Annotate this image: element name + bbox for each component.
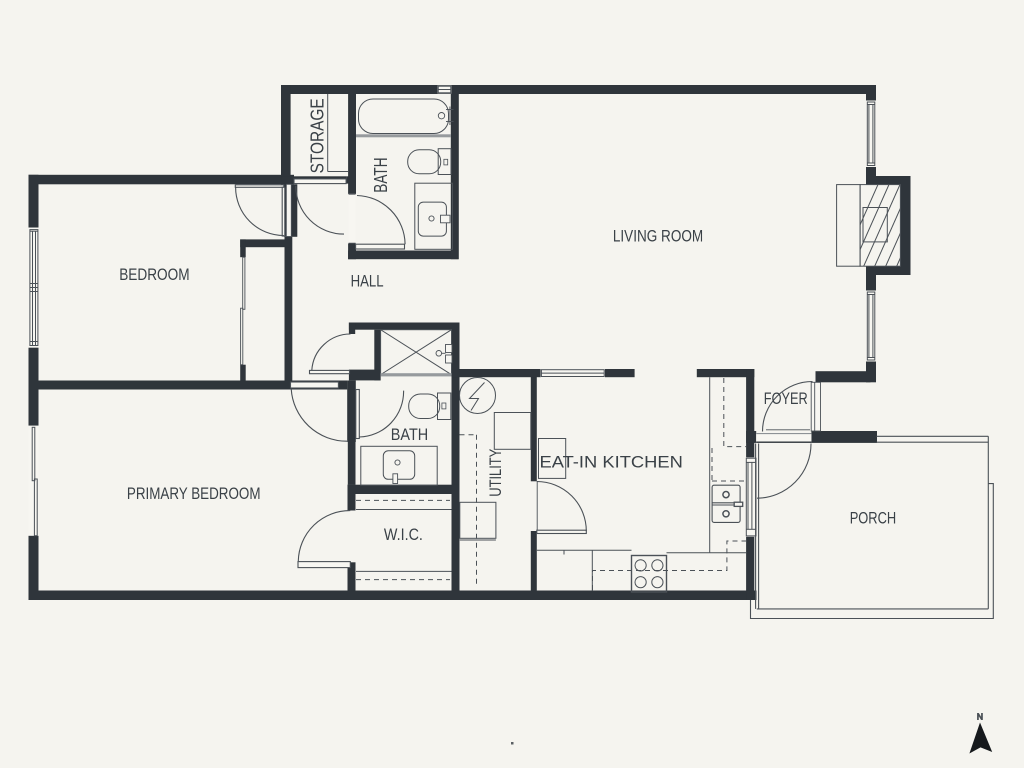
svg-text:LIVING ROOM: LIVING ROOM bbox=[613, 226, 703, 245]
svg-text:EAT-IN KITCHEN: EAT-IN KITCHEN bbox=[540, 452, 683, 471]
svg-text:UTILITY: UTILITY bbox=[486, 449, 505, 497]
svg-text:BATH: BATH bbox=[371, 157, 391, 192]
svg-text:STORAGE: STORAGE bbox=[308, 98, 328, 173]
svg-text:PORCH: PORCH bbox=[850, 509, 897, 528]
svg-text:BATH: BATH bbox=[391, 425, 428, 444]
svg-text:W.I.C.: W.I.C. bbox=[384, 525, 423, 544]
svg-text:FOYER: FOYER bbox=[764, 389, 808, 408]
svg-text:N: N bbox=[977, 712, 983, 722]
svg-text:HALL: HALL bbox=[351, 272, 384, 291]
svg-text:BEDROOM: BEDROOM bbox=[119, 265, 189, 284]
svg-text:PRIMARY BEDROOM: PRIMARY BEDROOM bbox=[127, 484, 261, 503]
